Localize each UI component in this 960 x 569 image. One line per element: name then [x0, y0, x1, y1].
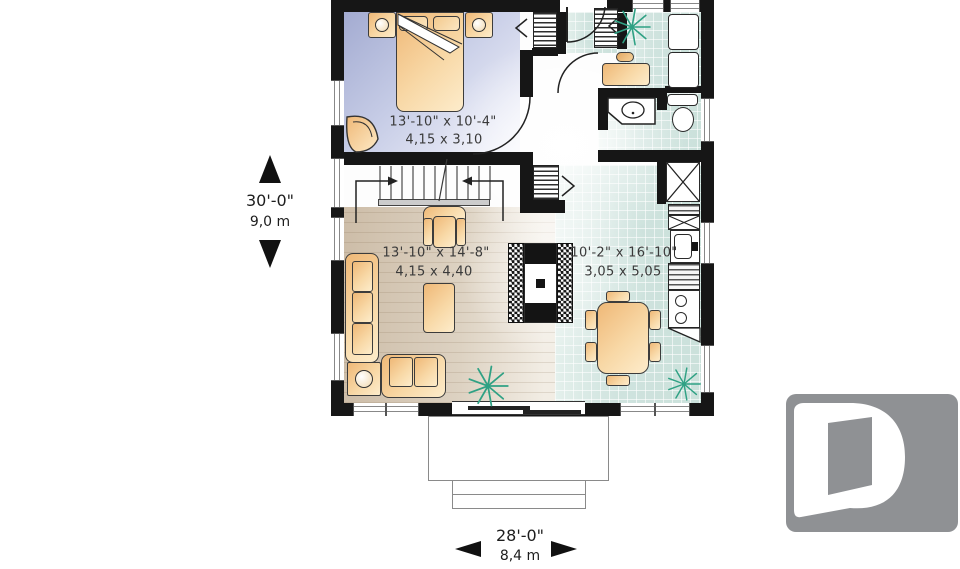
wall-bedroom-south: [344, 152, 533, 165]
dishwasher: [668, 204, 700, 215]
dining-chair-right-2: [649, 342, 661, 362]
fireplace-bottom-band: [525, 303, 556, 322]
dining-chair-left-1: [585, 310, 597, 330]
kitchen-dim-metric: 3,05 x 5,05: [584, 265, 661, 280]
bedroom-dim-metric: 4,15 x 3,10: [405, 133, 482, 148]
patio-door-panel-1: [468, 406, 530, 410]
fireplace-top-band: [525, 244, 556, 264]
end-table-lamp-icon: [355, 370, 373, 388]
wall-stair-closet-south: [533, 200, 565, 213]
bedroom-closet: [533, 12, 557, 48]
window-kitchen: [701, 222, 714, 264]
wall-front-closet-stub: [617, 13, 627, 49]
window-stair-landing: [331, 158, 344, 208]
porch-step-2: [452, 494, 586, 509]
depth-dim-metric: 9,0 m: [228, 214, 312, 230]
wall-entry-closet-east: [557, 12, 566, 54]
entry-coat-closet: [594, 8, 618, 48]
kitchen-drawers: [668, 263, 700, 290]
sofa-cushion-3: [352, 323, 373, 355]
depth-arrow-up-icon: [259, 155, 281, 183]
wall-stair-closet-west: [520, 152, 533, 213]
living-dim-metric: 4,15 x 4,40: [395, 265, 472, 280]
logo-d-icon: [786, 394, 958, 532]
dining-table: [597, 302, 649, 374]
depth-dim-imperial: 30'-0": [228, 191, 312, 210]
builder-logo: [786, 394, 958, 532]
bedroom-dim-imperial: 13'-10" x 10'-4": [389, 115, 496, 130]
width-dim-imperial: 28'-0": [478, 526, 562, 545]
wall-linen-west: [657, 162, 666, 204]
kitchen-dim-imperial: 10'-2" x 16'-10": [570, 246, 677, 261]
fireplace-hatch-left: [508, 243, 524, 323]
sofa-cushion-1: [352, 261, 373, 292]
loveseat-cushion-1: [389, 357, 413, 387]
console-table: [602, 63, 650, 86]
armchair-arm-right: [456, 218, 466, 246]
pillow-right: [433, 16, 460, 31]
floor-plan-canvas: 13'-10" x 10'-4" 4,15 x 3,10 13'-10" x 1…: [0, 0, 960, 569]
window-dining-south-1: [620, 403, 655, 416]
window-entry-top-2: [670, 0, 700, 12]
toilet-bowl: [672, 107, 694, 132]
faucet-icon: [692, 242, 698, 251]
wall-bedroom-east: [520, 50, 533, 97]
lamp-right-icon: [472, 18, 486, 32]
bedroom-closet-opening: [520, 12, 533, 50]
loveseat-cushion-2: [414, 357, 438, 387]
pillow-left: [399, 16, 428, 31]
counter-storage: [668, 215, 700, 230]
fireplace-flue-icon: [536, 279, 545, 288]
coffee-table: [423, 283, 455, 333]
sofa-cushion-2: [352, 292, 373, 323]
burner-icon-2: [675, 312, 687, 324]
dining-chair-bottom: [606, 375, 630, 386]
patio-door-panel-2: [523, 410, 581, 414]
living-dim-imperial: 13'-10" x 14'-8": [382, 246, 489, 261]
dining-chair-left-2: [585, 342, 597, 362]
dining-chair-top: [606, 291, 630, 302]
linen-closet: [666, 162, 700, 202]
window-dining: [701, 345, 714, 393]
window-bedroom-west: [331, 80, 344, 126]
patio-sliding-door: [452, 401, 585, 415]
entry-cabinet-lower: [668, 52, 699, 88]
dining-chair-right-1: [649, 310, 661, 330]
porch-step-1: [452, 480, 586, 495]
window-living-lower: [331, 333, 344, 381]
window-living-south-2: [386, 403, 419, 416]
window-dining-south-2: [655, 403, 690, 416]
window-living-south-1: [353, 403, 386, 416]
armchair-arm-left: [423, 218, 433, 246]
stair-closet: [533, 165, 559, 200]
entry-cabinet-upper: [668, 14, 699, 50]
wall-bath-south: [598, 150, 701, 162]
armchair-seat: [433, 216, 456, 248]
bedroom-door-opening: [520, 97, 533, 152]
lamp-left-icon: [375, 18, 389, 32]
depth-arrow-down-icon: [259, 240, 281, 268]
wall-bath-west: [598, 88, 608, 130]
window-entry-top: [632, 0, 664, 12]
burner-icon-1: [675, 295, 687, 307]
toilet-tank: [667, 94, 698, 106]
width-arrow-right-icon: [551, 541, 577, 557]
porch: [428, 416, 609, 481]
vase-icon: [616, 52, 634, 62]
stair-railing: [378, 199, 490, 206]
width-dim-metric: 8,4 m: [478, 548, 562, 564]
wall-entry-closet-south: [532, 48, 558, 56]
window-living-upper: [331, 217, 344, 261]
window-bathroom: [701, 98, 714, 142]
